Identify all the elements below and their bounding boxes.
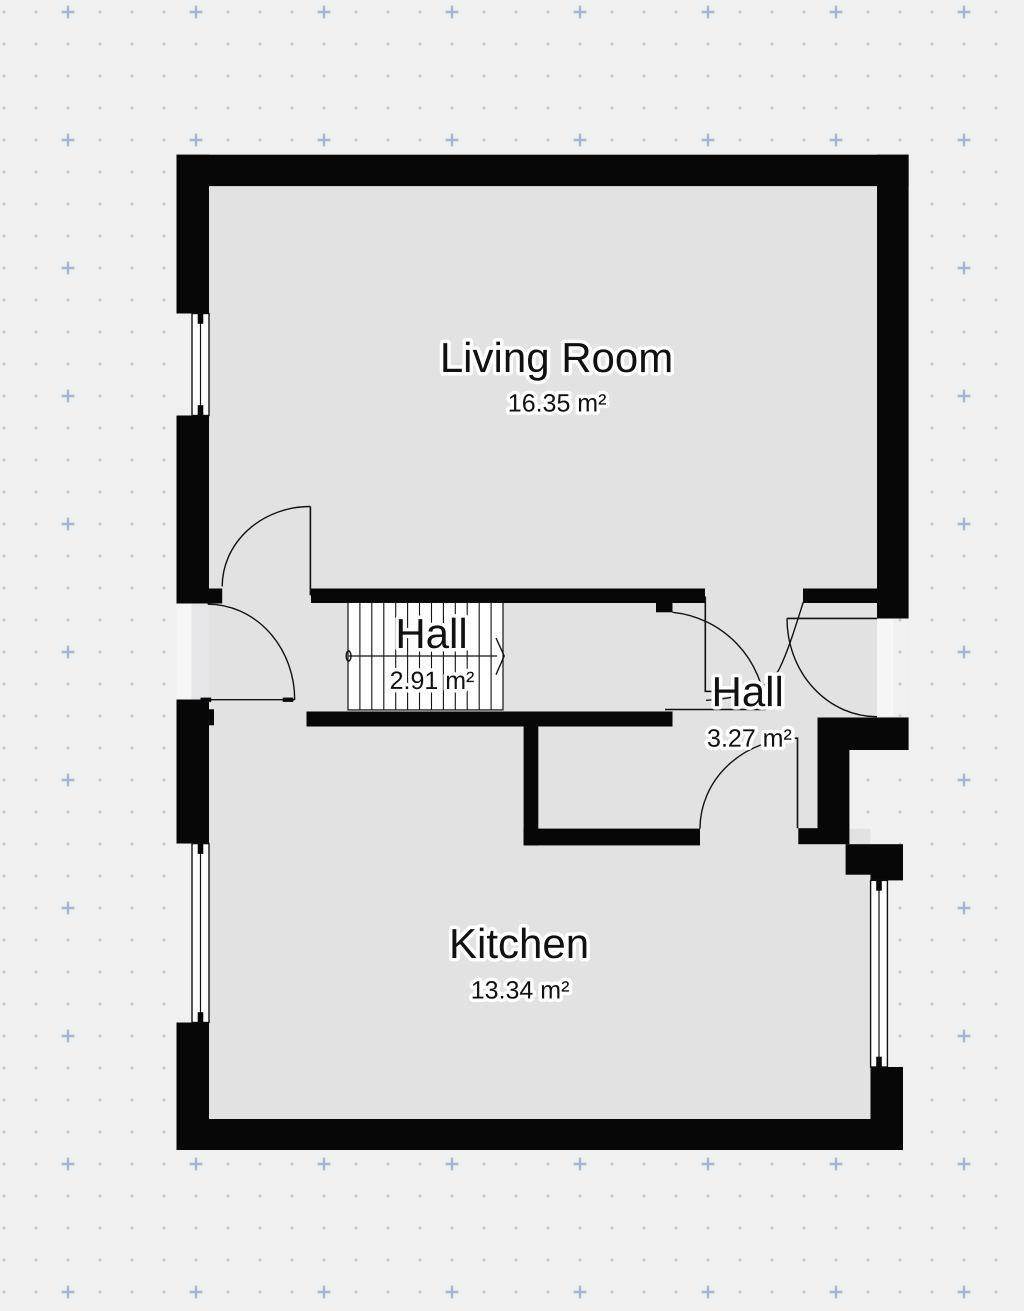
svg-text:13.34 m²: 13.34 m² bbox=[471, 976, 570, 1004]
svg-text:Hall: Hall bbox=[395, 610, 467, 657]
svg-text:16.35 m²: 16.35 m² bbox=[508, 389, 607, 417]
svg-text:2.91 m²: 2.91 m² bbox=[390, 667, 475, 695]
svg-text:Living Room: Living Room bbox=[440, 334, 673, 381]
svg-text:Kitchen: Kitchen bbox=[449, 920, 589, 967]
svg-text:3.27 m²: 3.27 m² bbox=[707, 725, 792, 753]
svg-text:Hall: Hall bbox=[711, 668, 783, 715]
